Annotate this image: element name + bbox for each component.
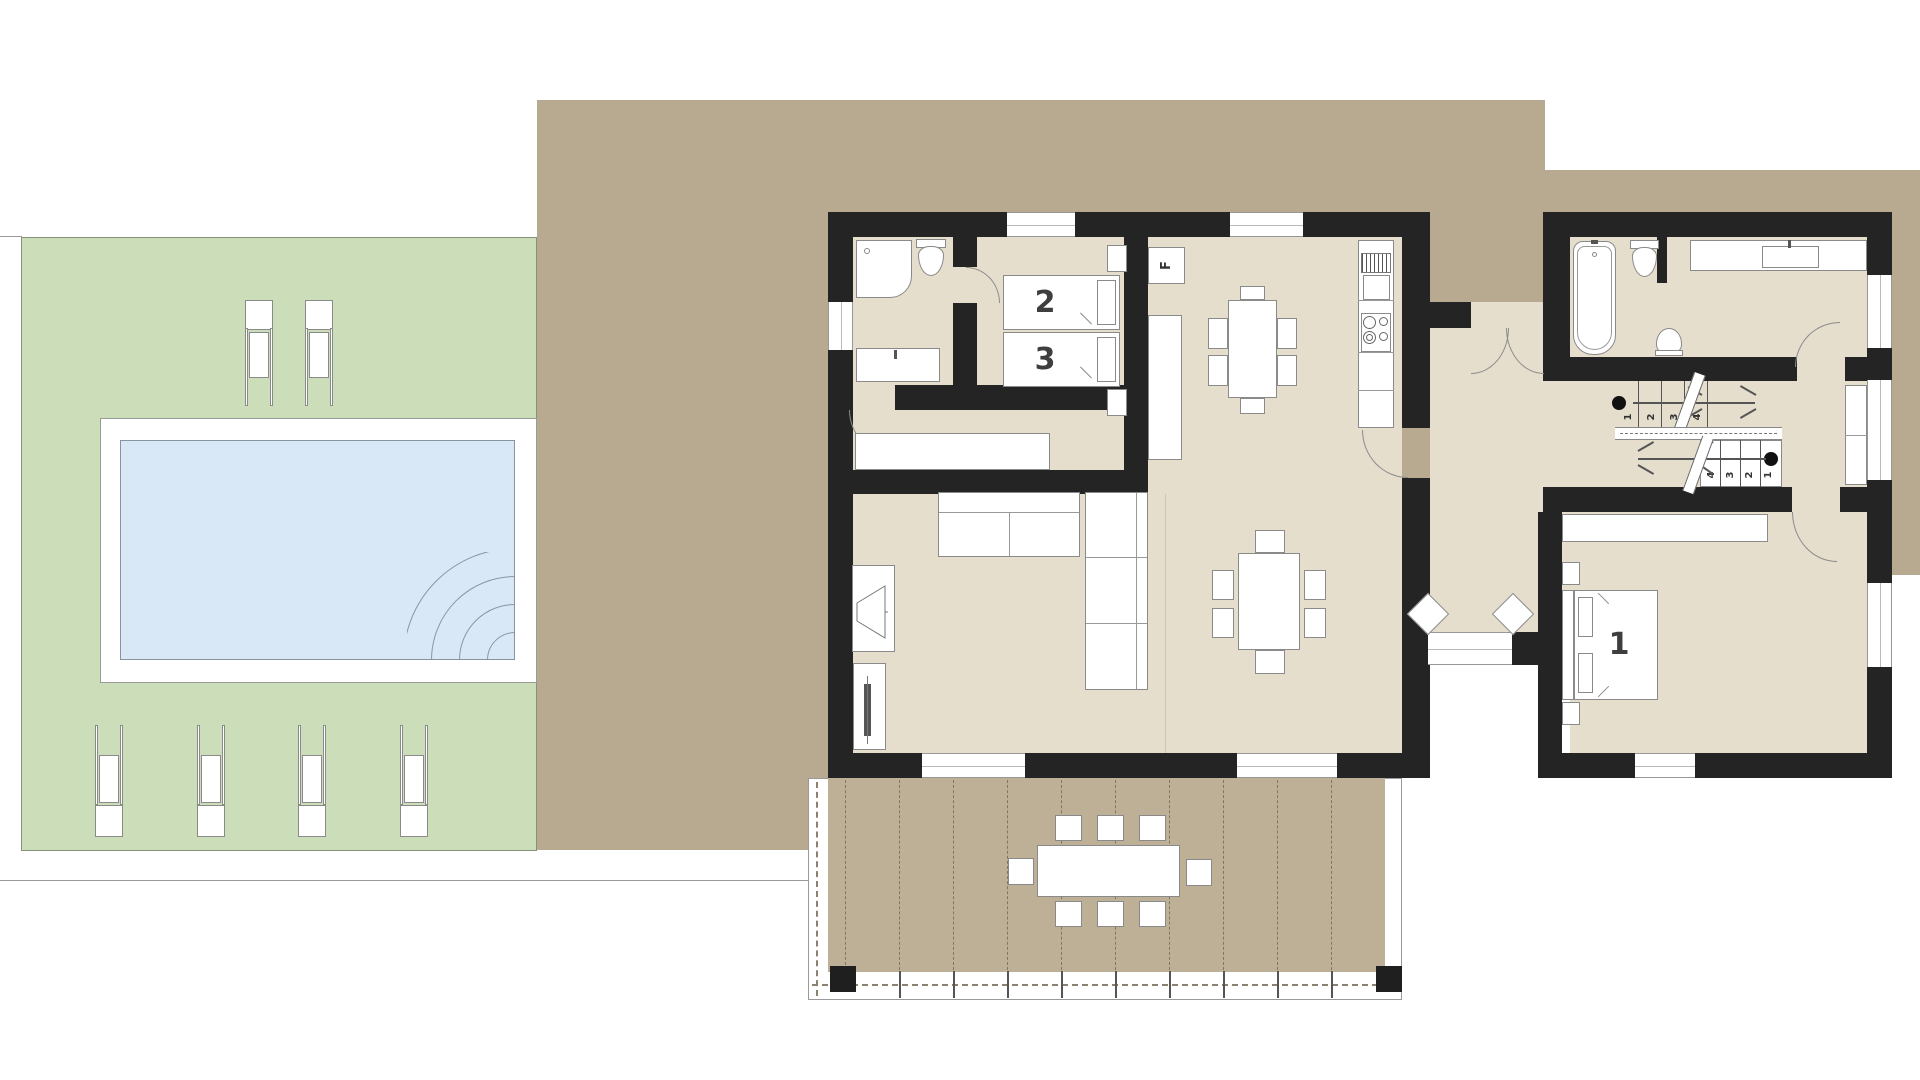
- counter-divider: [1358, 352, 1394, 353]
- bidet-base: [1655, 350, 1683, 356]
- lounge-chair-seat: [404, 755, 424, 803]
- site-ground-upper-right: [1545, 170, 1920, 213]
- chair: [1212, 570, 1234, 600]
- walkway-line: [0, 880, 810, 881]
- lounge-chair-seat: [201, 755, 221, 803]
- stair-tread-line: [1661, 381, 1662, 427]
- burner-icon: [1379, 317, 1388, 326]
- lounge-chair-head: [305, 300, 333, 330]
- vanity-sink: [1762, 246, 1819, 268]
- lounge-chair-rail: [298, 725, 301, 805]
- terrace-column-tick: [1331, 971, 1333, 998]
- nightstand: [1562, 562, 1580, 585]
- lounge-chair-head: [197, 805, 225, 837]
- sofa-cushion-line: [1086, 623, 1147, 624]
- terrace-plank-line: [1223, 780, 1224, 970]
- bathtub-drain: [1592, 252, 1597, 257]
- wall: [895, 385, 1124, 410]
- faucet-icon: [1591, 240, 1598, 244]
- faucet-icon: [1788, 240, 1791, 248]
- bed1-number: 1: [1609, 627, 1630, 662]
- bed3-number: 3: [1035, 342, 1056, 377]
- nightstand: [1107, 389, 1127, 416]
- nightstand: [1562, 702, 1580, 725]
- dining-table: [1238, 553, 1300, 650]
- nightstand: [1107, 245, 1127, 272]
- window: [922, 753, 1025, 778]
- bed-label: 2: [1010, 280, 1080, 325]
- lounge-chair: [400, 725, 428, 837]
- burner-icon: [1379, 332, 1388, 341]
- window: [828, 302, 853, 350]
- bed-label: 1: [1596, 622, 1642, 667]
- stair-start-dot: [1764, 452, 1778, 466]
- site-boundary-line: [0, 236, 22, 237]
- pillow: [1578, 597, 1593, 637]
- lounge-chair-seat: [309, 332, 329, 378]
- ground-gap: [1402, 778, 1545, 850]
- notch-between-wings: [1430, 665, 1538, 778]
- lounge-chair-rail: [222, 725, 225, 805]
- bed2-number: 2: [1035, 285, 1056, 320]
- site-ground-right-strip: [1892, 213, 1920, 575]
- outdoor-chair: [1055, 815, 1082, 841]
- terrace-edge-dashed-line: [816, 782, 818, 996]
- lounge-chair-seat: [99, 755, 119, 803]
- terrace-plank-line: [899, 780, 900, 970]
- terrace-column-tick: [1061, 971, 1063, 998]
- window: [1428, 632, 1512, 665]
- window: [1237, 753, 1337, 778]
- pillow: [1578, 653, 1593, 693]
- pool-step-arc: [407, 552, 515, 660]
- window: [1007, 212, 1075, 237]
- kitchen-table: [1228, 300, 1277, 398]
- outdoor-chair: [1097, 901, 1124, 927]
- terrace-post: [830, 966, 856, 992]
- step-number: 2: [1744, 472, 1755, 479]
- terrace-plank-line: [1331, 780, 1332, 970]
- outdoor-chair: [1097, 815, 1124, 841]
- wall: [1543, 357, 1797, 381]
- tv-icon: [856, 584, 888, 640]
- lounge-chair-head: [95, 805, 123, 837]
- wall: [1543, 212, 1570, 357]
- window: [1867, 275, 1892, 348]
- wall: [1543, 212, 1892, 237]
- wall: [1538, 753, 1892, 778]
- stair-tread-line: [1720, 440, 1721, 487]
- lounge-chair-seat: [249, 332, 269, 378]
- terrace-column-tick: [1223, 971, 1225, 998]
- landing-dashed-line: [1620, 433, 1777, 434]
- bed-headboard: [1562, 590, 1574, 700]
- outdoor-chair: [1139, 815, 1166, 841]
- terrace-column-tick: [899, 971, 901, 998]
- fridge-label: F: [1159, 261, 1174, 270]
- chair: [1208, 318, 1228, 349]
- lounge-chair-head: [400, 805, 428, 837]
- lounge-chair-head: [298, 805, 326, 837]
- chair: [1255, 650, 1285, 674]
- outdoor-chair: [1055, 901, 1082, 927]
- wall: [1840, 487, 1867, 512]
- terrace-plank-line: [1277, 780, 1278, 970]
- faucet-icon: [894, 350, 897, 359]
- wall: [1402, 212, 1430, 428]
- terrace-column-tick: [1007, 971, 1009, 998]
- counter-divider: [1358, 390, 1394, 391]
- outdoor-chair: [1139, 901, 1166, 927]
- lounge-chair: [298, 725, 326, 837]
- step-number: 1: [1763, 472, 1774, 479]
- lounge-chair-rail: [197, 725, 200, 805]
- lounge-chair-rail: [400, 725, 403, 805]
- kitchen-counter: [1148, 315, 1182, 460]
- sofa-chaise: [1085, 492, 1148, 690]
- lounge-chair: [305, 300, 333, 406]
- window: [1867, 380, 1892, 480]
- chair: [1240, 398, 1265, 414]
- chair: [1240, 286, 1265, 300]
- window: [1867, 583, 1892, 667]
- chair: [1277, 318, 1297, 349]
- outdoor-chair: [1186, 859, 1212, 886]
- stair-step-number: 3: [1723, 468, 1737, 482]
- lounge-chair-rail: [270, 328, 273, 406]
- lounge-chair-seat: [302, 755, 322, 803]
- shower-drain: [864, 248, 870, 254]
- wall: [1430, 302, 1471, 328]
- wall: [828, 212, 1430, 237]
- lounge-chair-head: [245, 300, 273, 330]
- stair-tread-line: [1740, 440, 1741, 487]
- fridge: F: [1148, 247, 1185, 284]
- terrace-column-tick: [953, 971, 955, 998]
- wall: [1124, 237, 1148, 470]
- window: [1230, 212, 1303, 237]
- wall: [853, 470, 1148, 494]
- chair: [1304, 570, 1326, 600]
- terrace-plank-line: [845, 780, 846, 970]
- sofa-backrest-line: [1136, 493, 1137, 689]
- lounge-chair-rail: [245, 328, 248, 406]
- closet-divider: [1845, 435, 1867, 436]
- lounge-chair-rail: [120, 725, 123, 805]
- wall: [1543, 487, 1792, 512]
- stair-tread-line: [1707, 381, 1708, 427]
- step-number: 1: [1623, 414, 1634, 421]
- bathroom-vanity: [856, 348, 940, 382]
- bed-label: 3: [1010, 337, 1080, 382]
- terrace-post: [1376, 966, 1402, 992]
- window: [1635, 753, 1695, 778]
- wardrobe: [1562, 514, 1768, 542]
- stair-step-number: 1: [1621, 410, 1635, 424]
- wall: [1845, 357, 1867, 381]
- drainboard-icon: [1361, 253, 1391, 273]
- pool-steps: [407, 552, 515, 660]
- lounge-chair-rail: [305, 328, 308, 406]
- pillow: [1097, 280, 1116, 325]
- sideboard: [855, 433, 1050, 470]
- stair-tread-line: [1638, 381, 1639, 427]
- lounge-chair-rail: [330, 328, 333, 406]
- lounge-chair-rail: [425, 725, 428, 805]
- lounge-chair: [95, 725, 123, 837]
- wall: [828, 212, 853, 778]
- fireplace-line: [867, 676, 868, 744]
- wall: [828, 753, 1430, 778]
- wall: [953, 237, 977, 267]
- wall: [953, 303, 977, 385]
- lounge-chair-rail: [95, 725, 98, 805]
- chair: [1212, 608, 1234, 638]
- floor-plan: 2 3 F: [0, 0, 1920, 1080]
- step-number: 2: [1646, 414, 1657, 421]
- lounge-chair-rail: [323, 725, 326, 805]
- outdoor-chair: [1008, 858, 1034, 885]
- chair: [1277, 355, 1297, 386]
- step-number: 3: [1725, 472, 1736, 479]
- lounge-chair: [245, 300, 273, 406]
- stair-step-number: 2: [1644, 410, 1658, 424]
- terrace-column-tick: [1277, 971, 1279, 998]
- lounge-chair: [197, 725, 225, 837]
- outdoor-table: [1037, 845, 1180, 897]
- floor-seam-line: [1165, 494, 1166, 753]
- chair: [1208, 355, 1228, 386]
- burner-icon: [1366, 334, 1373, 341]
- sofa-cushion-line: [1086, 557, 1147, 558]
- stair-step-number: 2: [1742, 468, 1756, 482]
- sofa-cushion-line: [1009, 513, 1010, 556]
- bathtub-inner: [1577, 246, 1612, 350]
- counter-divider: [1358, 300, 1394, 301]
- stair-step-number: 1: [1761, 468, 1775, 482]
- terrace-column-tick: [1115, 971, 1117, 998]
- terrace-column-tick: [1169, 971, 1171, 998]
- burner-icon: [1363, 316, 1376, 329]
- chair: [1255, 530, 1285, 553]
- chair: [1304, 608, 1326, 638]
- pillow: [1097, 337, 1116, 382]
- terrace-plank-line: [953, 780, 954, 970]
- kitchen-sink: [1363, 275, 1390, 300]
- stair-start-dot: [1612, 396, 1626, 410]
